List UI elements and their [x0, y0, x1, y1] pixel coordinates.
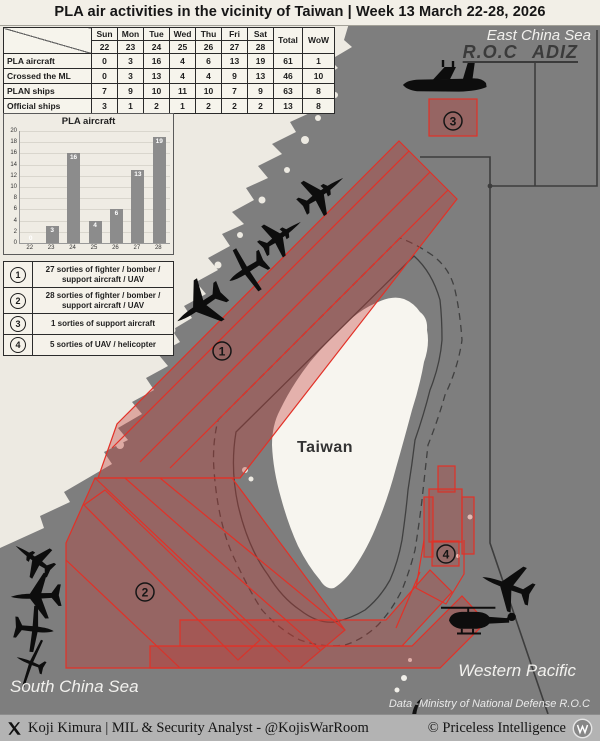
legend-row: 31 sorties of support aircraft [4, 314, 173, 335]
chart-xtick-label: 23 [45, 245, 58, 252]
chart-gridline [20, 187, 170, 188]
table-body: PLA aircraft0316461319611Crossed the ML0… [4, 54, 335, 114]
table-value-cell: 0 [92, 69, 118, 84]
table-value-cell: 4 [170, 69, 196, 84]
label-south-china-sea: South China Sea [10, 677, 139, 697]
chart-xtick-label: 22 [23, 245, 36, 252]
table-value-cell: 16 [144, 54, 170, 69]
page-title: PLA air activities in the vicinity of Ta… [0, 0, 600, 26]
chart-bar-value: 4 [89, 222, 102, 229]
table-value-cell: 4 [196, 69, 222, 84]
chart-xtick-label: 24 [66, 245, 79, 252]
table-value-cell: 3 [118, 54, 144, 69]
zone-legend: 127 sorties of fighter / bomber / suppor… [3, 261, 174, 356]
chart-ytick-label: 14 [4, 162, 17, 168]
table-value-cell: 10 [144, 84, 170, 99]
label-roc-adiz: R.O.C ADIZ [463, 42, 578, 63]
table-day-header: Thu [196, 28, 222, 41]
table-wow-cell: 10 [303, 69, 335, 84]
table-row: Official ships3121222138 [4, 99, 335, 114]
table-value-cell: 2 [144, 99, 170, 114]
table-wow-cell: 8 [303, 99, 335, 114]
legend-number-cell: 2 [4, 288, 33, 313]
chart-ytick-label: 20 [4, 128, 17, 134]
chart-ytick-label: 10 [4, 184, 17, 190]
chart-gridline [20, 209, 170, 210]
chart-gridline [20, 131, 170, 132]
legend-number-circle: 2 [10, 293, 26, 309]
chart-title: PLA aircraft [4, 116, 173, 127]
table-total-cell: 13 [274, 99, 303, 114]
table-day-header: Fri [222, 28, 248, 41]
legend-row: 228 sorties of fighter / bomber / suppor… [4, 288, 173, 314]
table-wow-cell: 1 [303, 54, 335, 69]
chart-ytick-label: 2 [4, 229, 17, 235]
pla-aircraft-chart: PLA aircraft 0316461319 0246810121416182… [3, 113, 174, 255]
legend-text: 27 sorties of fighter / bomber / support… [33, 263, 173, 286]
table-extra-header: WoW [303, 28, 335, 54]
table-value-cell: 7 [222, 84, 248, 99]
chart-xtick-label: 28 [152, 245, 165, 252]
label-data-source: Data -Ministry of National Defense R.O.C [389, 698, 590, 710]
table-date-header: 26 [196, 41, 222, 54]
table-date-header: 24 [144, 41, 170, 54]
table-value-cell: 11 [170, 84, 196, 99]
svg-text:2: 2 [142, 586, 149, 600]
table-row: Crossed the ML0313449134610 [4, 69, 335, 84]
table-value-cell: 6 [196, 54, 222, 69]
table-value-cell: 2 [248, 99, 274, 114]
chart-xtick-label: 26 [109, 245, 122, 252]
svg-text:4: 4 [443, 548, 450, 562]
table-row: PLAN ships7910111079638 [4, 84, 335, 99]
table-value-cell: 2 [196, 99, 222, 114]
table-date-header: 28 [248, 41, 274, 54]
legend-row: 45 sorties of UAV / helicopter [4, 335, 173, 355]
table-value-cell: 9 [248, 84, 274, 99]
footer-left: Koji Kimura | MIL & Security Analyst - @… [7, 720, 369, 737]
table-value-cell: 2 [222, 99, 248, 114]
table-row-label: PLAN ships [4, 84, 92, 99]
chart-bar [153, 137, 166, 243]
table-value-cell: 9 [118, 84, 144, 99]
table-corner-cell [4, 28, 92, 54]
chart-bar-value: 13 [131, 171, 144, 178]
table-value-cell: 1 [170, 99, 196, 114]
chart-gridline [20, 198, 170, 199]
table-row-label: Official ships [4, 99, 92, 114]
chart-xtick-label: 27 [130, 245, 143, 252]
table-date-header: 25 [170, 41, 196, 54]
table-date-header: 27 [222, 41, 248, 54]
table-row: PLA aircraft0316461319611 [4, 54, 335, 69]
chart-bar-value: 3 [46, 227, 59, 234]
table-day-header: Sat [248, 28, 274, 41]
label-western-pacific: Western Pacific [458, 661, 576, 681]
table-head: SunMonTueWedThuFriSatTotalWoW22232425262… [4, 28, 335, 54]
x-twitter-icon [7, 721, 22, 736]
legend-row: 127 sorties of fighter / bomber / suppor… [4, 262, 173, 288]
table-value-cell: 9 [222, 69, 248, 84]
chart-ytick-label: 18 [4, 139, 17, 145]
table-day-header: Mon [118, 28, 144, 41]
footer-brand: © Priceless Intelligence [428, 720, 566, 737]
legend-number-cell: 4 [4, 335, 33, 355]
svg-text:3: 3 [450, 115, 457, 129]
chart-ytick-label: 4 [4, 218, 17, 224]
chart-bar [67, 153, 80, 243]
chart-xtick-label: 25 [88, 245, 101, 252]
svg-text:1: 1 [219, 345, 226, 359]
legend-number-circle: 3 [10, 316, 26, 332]
table-extra-header: Total [274, 28, 303, 54]
chart-ytick-label: 8 [4, 195, 17, 201]
table-wow-cell: 8 [303, 84, 335, 99]
chart-gridline [20, 153, 170, 154]
priceless-intelligence-emblem-icon [572, 718, 593, 739]
chart-gridline [20, 176, 170, 177]
table-day-header: Sun [92, 28, 118, 41]
table-value-cell: 10 [196, 84, 222, 99]
table-total-cell: 61 [274, 54, 303, 69]
chart-bar-value: 0 [24, 235, 37, 242]
label-taiwan: Taiwan [297, 439, 353, 457]
table-row-label: Crossed the ML [4, 69, 92, 84]
legend-number-cell: 1 [4, 262, 33, 287]
chart-plot-area: 0316461319 [19, 131, 170, 244]
footer-right: © Priceless Intelligence [428, 718, 593, 739]
chart-ytick-label: 12 [4, 173, 17, 179]
footer-credit: Koji Kimura | MIL & Security Analyst - @… [28, 720, 369, 737]
table-date-header: 23 [118, 41, 144, 54]
table-date-header: 22 [92, 41, 118, 54]
legend-number-circle: 1 [10, 267, 26, 283]
table-total-cell: 63 [274, 84, 303, 99]
chart-gridline [20, 165, 170, 166]
table-value-cell: 1 [118, 99, 144, 114]
weekly-stats-table: SunMonTueWedThuFriSatTotalWoW22232425262… [3, 27, 335, 114]
table-day-header: Tue [144, 28, 170, 41]
table-day-header: Wed [170, 28, 196, 41]
table-value-cell: 3 [92, 99, 118, 114]
table-value-cell: 19 [248, 54, 274, 69]
chart-ytick-label: 16 [4, 150, 17, 156]
table-row-label: PLA aircraft [4, 54, 92, 69]
table-value-cell: 7 [92, 84, 118, 99]
chart-ytick-label: 6 [4, 206, 17, 212]
legend-number-cell: 3 [4, 314, 33, 334]
table-value-cell: 4 [170, 54, 196, 69]
chart-ytick-label: 0 [4, 240, 17, 246]
table-total-cell: 46 [274, 69, 303, 84]
chart-bar-value: 19 [153, 138, 166, 145]
legend-text: 1 sorties of support aircraft [33, 317, 173, 331]
table-value-cell: 0 [92, 54, 118, 69]
table-header-row: SunMonTueWedThuFriSatTotalWoW [4, 28, 335, 41]
legend-text: 28 sorties of fighter / bomber / support… [33, 289, 173, 312]
chart-gridline [20, 142, 170, 143]
footer-bar: Koji Kimura | MIL & Security Analyst - @… [0, 714, 600, 741]
table-value-cell: 13 [144, 69, 170, 84]
table-value-cell: 13 [222, 54, 248, 69]
legend-number-circle: 4 [10, 337, 26, 353]
legend-text: 5 sorties of UAV / helicopter [33, 338, 173, 352]
chart-bar-value: 6 [110, 210, 123, 217]
chart-bar-value: 16 [67, 154, 80, 161]
table-value-cell: 3 [118, 69, 144, 84]
table-value-cell: 13 [248, 69, 274, 84]
chart-bar [131, 170, 144, 243]
adiz-junction-dot [488, 184, 493, 189]
